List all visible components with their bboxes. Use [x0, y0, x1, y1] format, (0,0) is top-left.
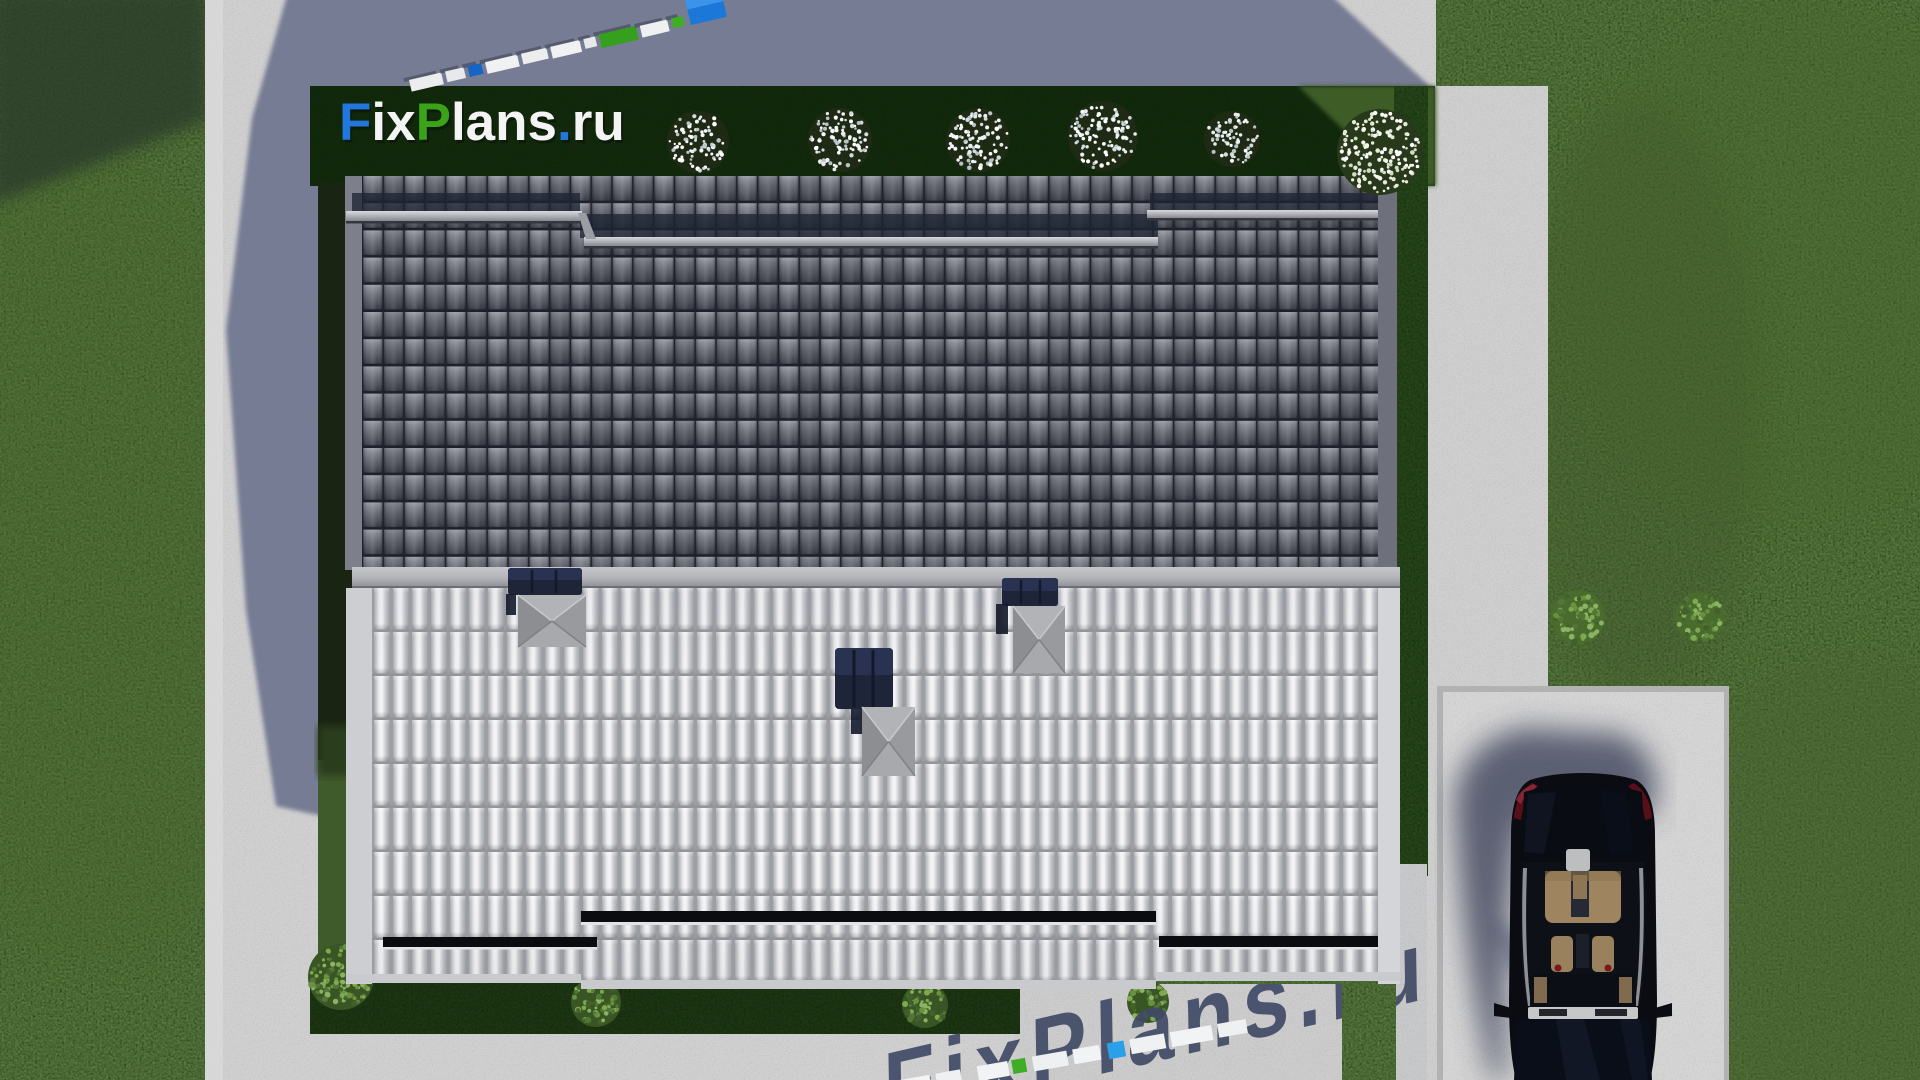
svg-text:FixPlans.ru: FixPlans.ru — [339, 93, 625, 152]
